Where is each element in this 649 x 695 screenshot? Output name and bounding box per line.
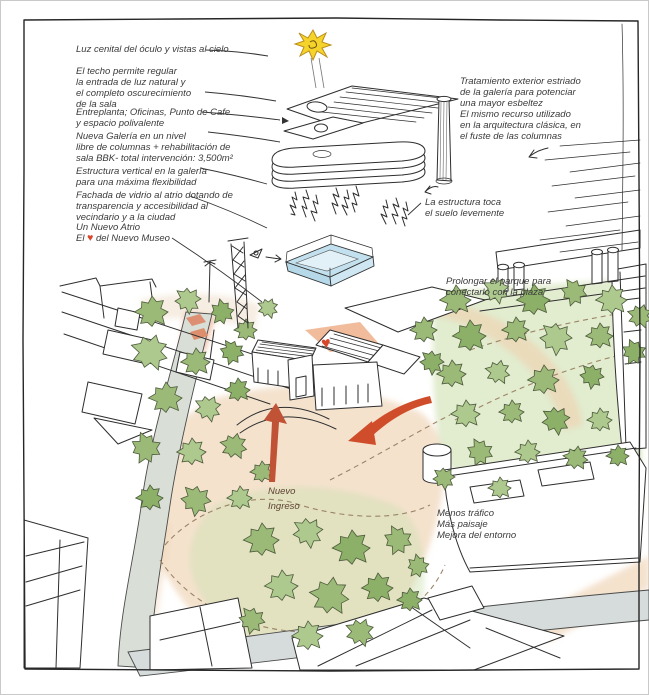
atrium-glass-box: [286, 235, 374, 286]
annotation-roof: El techo permite regular la entrada de l…: [76, 66, 191, 110]
mezzanine-plane: [284, 117, 363, 139]
annotation-structure-ground: La estructura toca el suelo levemente: [425, 197, 504, 219]
sketch-page: ♥: [0, 0, 649, 695]
annotation-facade: Fachada de vidrio al atrio dotando de tr…: [76, 190, 233, 223]
gallery-hook-arrow: [529, 148, 548, 158]
annotation-park-extension: Prolongar el parque para conectarlo con …: [446, 276, 551, 298]
structure-column-scribbles: [290, 186, 408, 226]
sun-icon: [295, 30, 331, 60]
fluted-column-icon: [425, 96, 452, 194]
eye-icon: [250, 249, 281, 262]
annotation-traffic: Menos tráfico Más paisaje Mejora del ent…: [437, 508, 516, 541]
light-rays: [311, 58, 324, 88]
annotation-new-entrance: Nuevo Ingreso: [268, 484, 300, 514]
annotation-structure: Estructura vertical en la galería para u…: [76, 166, 207, 188]
annotation-atrium-line1: Un Nuevo Atrio: [76, 222, 140, 233]
annotation-atrium-rest: del Nuevo Museo: [96, 233, 170, 244]
annotation-oculus-light: Luz cenital del óculo y vistas al cielo: [76, 44, 229, 55]
annotation-exterior-treatment: Tratamiento exterior estriado de la gale…: [460, 76, 581, 142]
gallery-volume: [272, 142, 425, 188]
skylight-roof-plane: [287, 86, 458, 128]
annotation-gallery: Nueva Galería en un nivel libre de colum…: [76, 131, 233, 164]
annotation-mezzanine: Entreplanta; Oficinas, Punto de Cafe y e…: [76, 107, 230, 129]
annotation-atrium-el: El: [76, 233, 84, 244]
heart-icon: ♥: [87, 232, 93, 244]
annotation-atrium: Un Nuevo AtrioEl ♥ del Nuevo Museo: [76, 222, 170, 244]
